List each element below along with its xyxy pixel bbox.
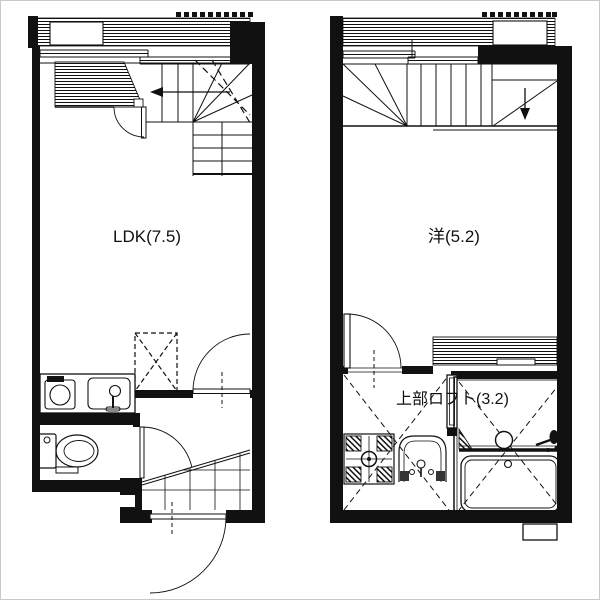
bedroom-door-leaf xyxy=(344,314,350,368)
bath-sink-icon xyxy=(496,432,513,449)
loft-counter xyxy=(433,337,557,365)
loft-label: 上部ロフト(3.2) xyxy=(396,390,509,408)
stair-door-leaf xyxy=(142,107,147,138)
ac-unit-icon xyxy=(493,21,547,45)
floorplan-image: LDK(7.5) xyxy=(0,0,600,600)
washing-machine-pan-icon xyxy=(344,434,394,484)
entrance-door-leaf xyxy=(150,514,226,519)
exterior-step xyxy=(523,524,557,540)
toilet-door-leaf xyxy=(140,427,144,478)
room-label-ldk: LDK(7.5) xyxy=(113,227,181,246)
kitchen-counter xyxy=(40,374,135,413)
floorplan-svg: LDK(7.5) xyxy=(0,0,600,600)
counter-handle xyxy=(497,359,535,365)
room-label-western: 洋(5.2) xyxy=(428,227,480,246)
ac-unit-icon xyxy=(50,22,103,45)
